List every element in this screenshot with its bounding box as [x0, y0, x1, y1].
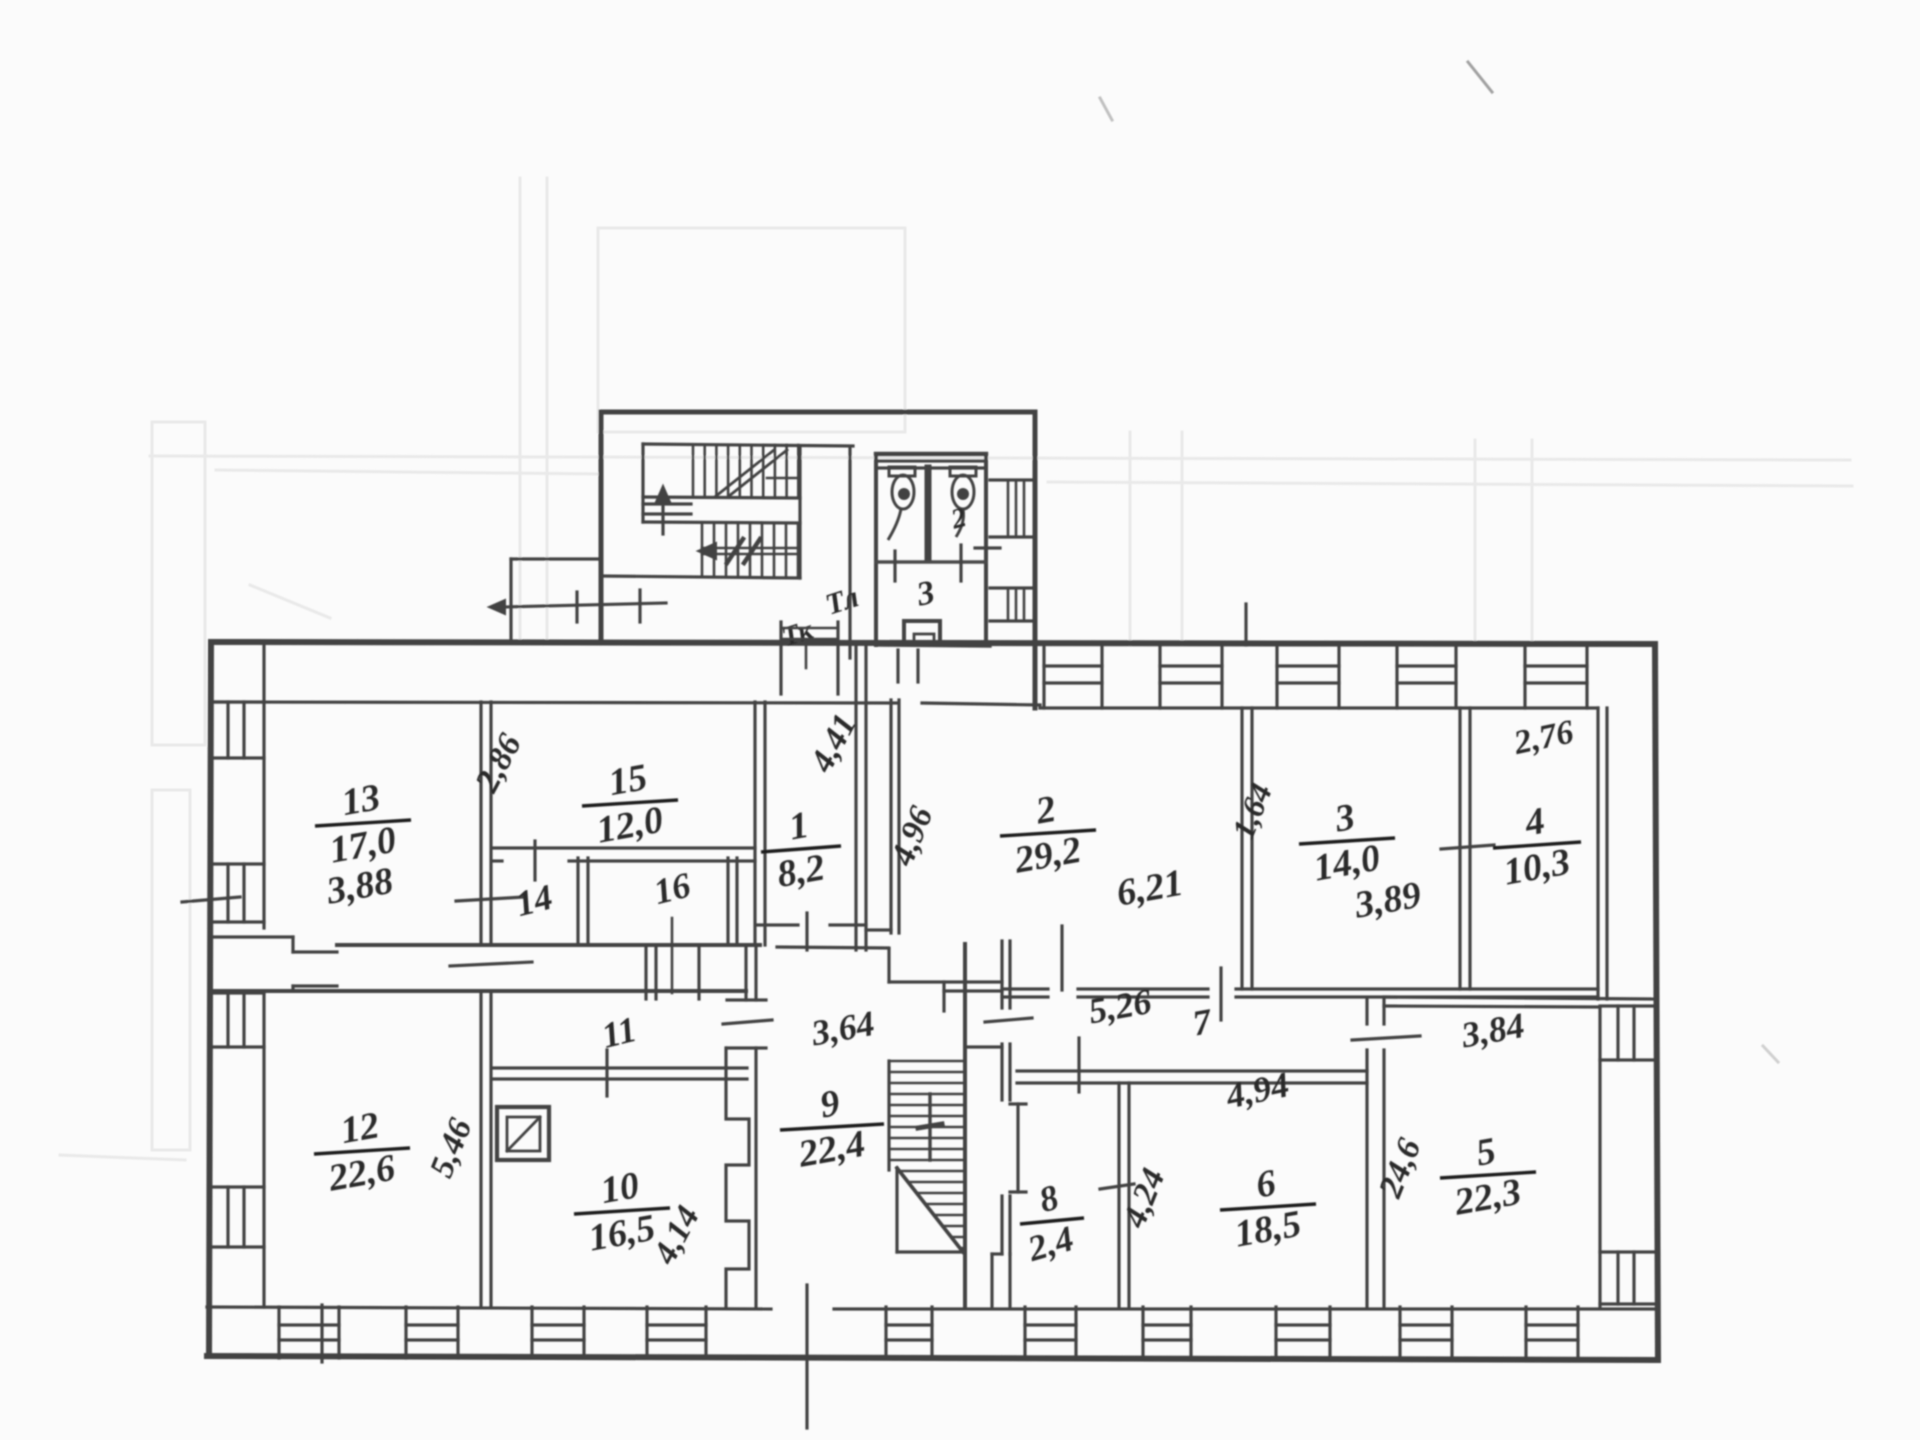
svg-text:12: 12 [338, 1104, 383, 1152]
svg-text:13: 13 [339, 776, 384, 824]
svg-text:8,2: 8,2 [774, 846, 828, 896]
svg-text:15: 15 [606, 756, 651, 804]
svg-text:10: 10 [598, 1164, 643, 1212]
